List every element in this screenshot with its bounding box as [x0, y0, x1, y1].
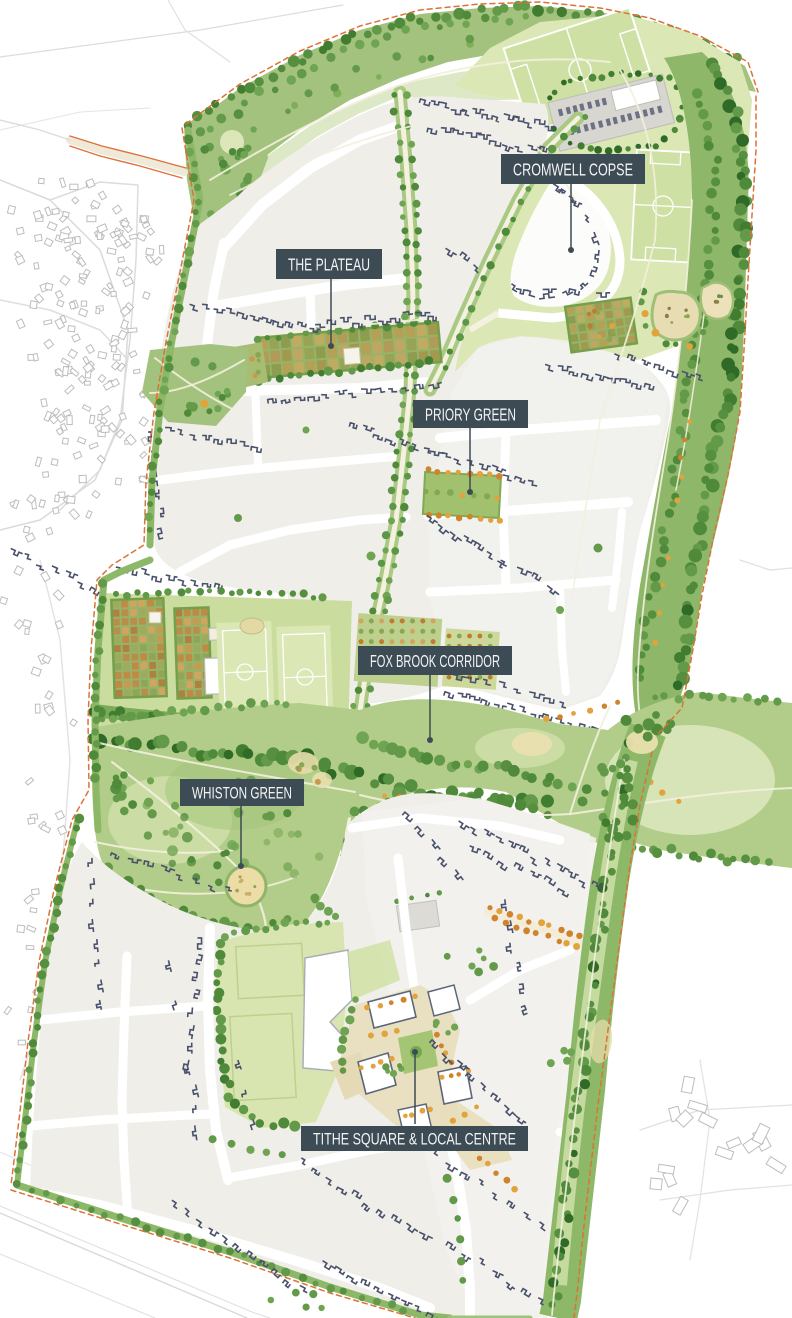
svg-text:THE PLATEAU: THE PLATEAU [288, 254, 370, 274]
svg-text:WHISTON GREEN: WHISTON GREEN [192, 784, 292, 802]
svg-text:FOX BROOK CORRIDOR: FOX BROOK CORRIDOR [370, 651, 500, 671]
svg-text:CROMWELL COPSE: CROMWELL COPSE [513, 159, 633, 179]
svg-text:TITHE SQUARE & LOCAL CENTRE: TITHE SQUARE & LOCAL CENTRE [313, 1130, 516, 1148]
svg-text:PRIORY GREEN: PRIORY GREEN [425, 404, 516, 424]
